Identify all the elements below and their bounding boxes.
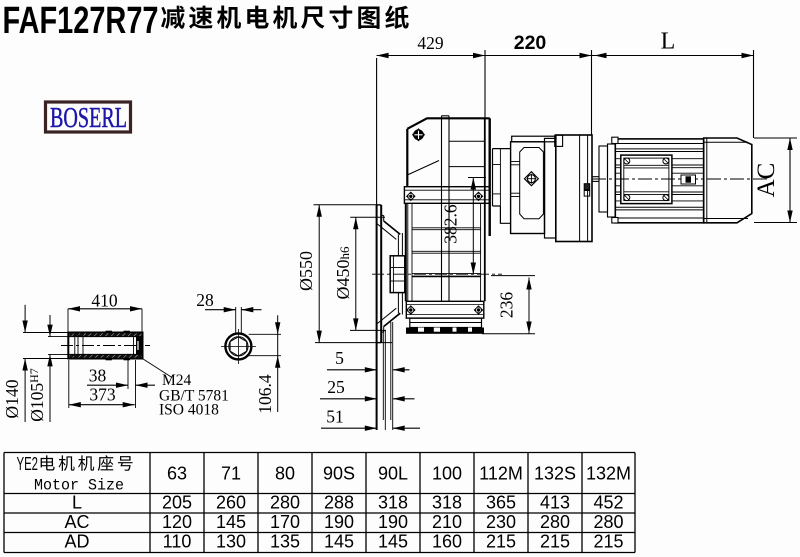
svg-text:260: 260 (216, 493, 246, 513)
svg-text:80: 80 (275, 464, 295, 484)
svg-text:288: 288 (324, 493, 354, 513)
svg-text:AC: AC (753, 163, 780, 198)
svg-text:145: 145 (216, 512, 246, 532)
svg-text:429: 429 (417, 33, 444, 53)
svg-text:FAF127R77: FAF127R77 (3, 0, 159, 41)
svg-text:135: 135 (270, 532, 300, 552)
svg-text:220: 220 (514, 32, 547, 54)
svg-text:365: 365 (486, 493, 516, 513)
svg-text:71: 71 (221, 464, 241, 484)
svg-text:AD: AD (64, 532, 89, 552)
svg-text:YE2: YE2 (17, 454, 39, 474)
svg-text:106.4: 106.4 (255, 374, 275, 414)
svg-text:215: 215 (486, 532, 516, 552)
svg-text:90S: 90S (323, 464, 355, 484)
svg-text:318: 318 (378, 493, 408, 513)
svg-text:230: 230 (486, 512, 516, 532)
svg-text:120: 120 (162, 512, 192, 532)
svg-text:110: 110 (163, 532, 192, 552)
svg-text:280: 280 (593, 512, 623, 532)
svg-text:145: 145 (378, 532, 408, 552)
svg-text:280: 280 (540, 512, 570, 532)
svg-text:Ø140: Ø140 (2, 379, 22, 418)
svg-text:100: 100 (432, 464, 462, 484)
svg-text:160: 160 (432, 532, 462, 552)
svg-text:63: 63 (167, 464, 187, 484)
svg-text:170: 170 (270, 512, 300, 532)
svg-text:L: L (661, 29, 676, 55)
svg-text:L: L (72, 493, 82, 513)
svg-text:132S: 132S (534, 464, 576, 484)
svg-text:Ø550: Ø550 (296, 251, 316, 291)
svg-text:M24: M24 (162, 372, 192, 389)
svg-text:112M: 112M (479, 464, 523, 484)
svg-text:413: 413 (540, 493, 570, 513)
svg-text:130: 130 (216, 532, 246, 552)
svg-text:410: 410 (91, 290, 118, 310)
svg-text:90L: 90L (378, 464, 408, 484)
svg-text:AC: AC (64, 512, 89, 532)
svg-text:205: 205 (162, 493, 192, 513)
svg-text:145: 145 (324, 532, 354, 552)
svg-text:280: 280 (270, 493, 300, 513)
svg-text:38: 38 (89, 365, 107, 385)
svg-text:25: 25 (327, 377, 345, 397)
svg-text:5: 5 (335, 348, 344, 368)
svg-text:452: 452 (593, 493, 623, 513)
svg-text:BOSERL: BOSERL (50, 103, 127, 134)
svg-text:28: 28 (196, 290, 214, 310)
svg-text:ISO 4018: ISO 4018 (159, 402, 219, 419)
svg-text:190: 190 (324, 512, 354, 532)
svg-text:210: 210 (432, 512, 462, 532)
svg-text:236: 236 (497, 292, 517, 319)
svg-text:215: 215 (593, 532, 623, 552)
svg-text:132M: 132M (586, 464, 631, 484)
svg-text:382.6: 382.6 (441, 204, 461, 244)
svg-text:51: 51 (326, 406, 344, 426)
svg-text:373: 373 (89, 385, 116, 405)
svg-text:215: 215 (540, 532, 570, 552)
svg-text:318: 318 (432, 493, 462, 513)
svg-text:190: 190 (378, 512, 408, 532)
